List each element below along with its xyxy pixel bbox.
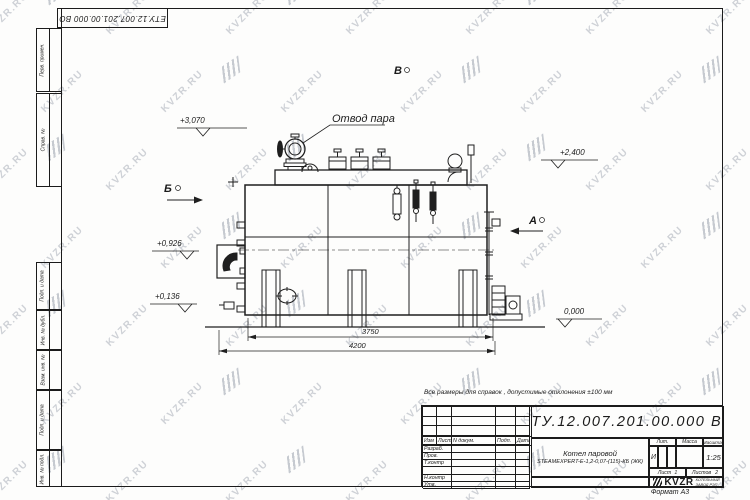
elev-0000-label: 0,000	[564, 307, 585, 316]
drawing-sheet: KVZR.RUKVZR.RUKVZR.RUKVZR.RUKVZR.RUKVZR.…	[0, 0, 750, 500]
dim-3750-label: 3750	[362, 327, 380, 336]
view-v-label: В	[394, 65, 402, 77]
elev-3070-label: +3,070	[180, 116, 205, 125]
steam-outlet-callout: Отвод пара	[303, 113, 395, 143]
elevation-2400: +2,400	[541, 148, 598, 168]
elevation-0000: 0,000	[556, 307, 602, 327]
deck-safety-valves	[329, 149, 390, 169]
elevation-0926: +0,926	[152, 239, 199, 259]
view-b-label: Б	[164, 183, 172, 195]
view-b: Б	[164, 183, 203, 204]
view-a: А	[510, 215, 545, 235]
view-a-label: А	[528, 215, 537, 227]
feed-pump	[490, 286, 522, 320]
deck-dome	[302, 164, 318, 172]
support-legs	[262, 270, 477, 327]
steam-outlet-valve	[278, 134, 307, 170]
level-gauges	[393, 180, 436, 224]
elevation-0136: +0,136	[150, 292, 197, 312]
dim-4200-label: 4200	[349, 341, 367, 350]
right-deck-fittings	[448, 145, 474, 183]
elev-2400-label: +2,400	[560, 148, 585, 157]
steam-drum-deck	[275, 164, 467, 185]
elevation-3070: +3,070	[177, 116, 247, 136]
dimension-4200: 4200	[219, 330, 495, 355]
dimension-3750: 3750	[248, 318, 493, 341]
boiler-drawing: Отвод пара	[0, 0, 750, 500]
view-v: В	[394, 65, 410, 77]
elev-0926-label: +0,926	[157, 239, 182, 248]
steam-outlet-label: Отвод пара	[332, 113, 395, 125]
manhole	[276, 287, 298, 305]
elev-0136-label: +0,136	[155, 292, 180, 301]
